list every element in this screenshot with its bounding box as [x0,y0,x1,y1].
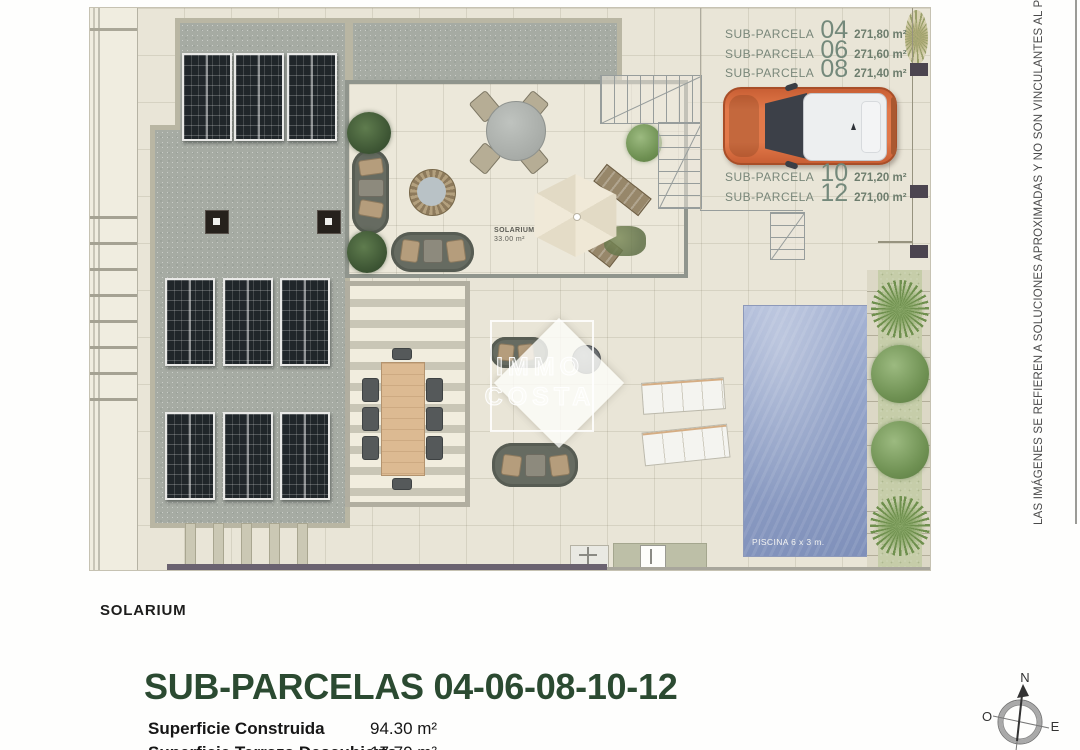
plan-caption: SOLARIUM [100,602,186,619]
skylight-right [317,210,341,234]
curved-sofa-left [352,149,389,234]
solar-panel [280,412,330,500]
perimeter-wall-dark [167,564,607,570]
car-hood-shade [729,95,759,157]
solar-panel [182,53,232,141]
perimeter-wall-light [607,567,930,570]
car-tailgate [891,97,896,155]
parcel-labels-bottom: SUB-PARCELA10271,20 m²SUB-PARCELA12271,0… [725,164,907,203]
border-rule [1075,0,1077,524]
solar-panel [165,412,215,500]
solar-panel [165,278,215,366]
curved-sofa-bottom [391,232,474,272]
walkway-rungs [90,216,137,421]
parcel-area: 271,20 m² [854,172,906,184]
swimming-pool: PISCINA 6 x 3 m. [743,305,869,557]
floor-plan: SOLARIUM 33.00 m² [90,8,930,570]
watermark-logo: IMMO COSTA [482,352,598,412]
surface-label: Superficie Terraza Descubierto [148,743,397,750]
shower-fixture [650,549,652,564]
plant [347,231,387,273]
chair [362,436,379,460]
grass-clump [870,496,930,556]
wall-segment [910,63,928,76]
skylight-left [205,210,229,234]
round-dining-table [486,101,546,161]
walkway-rung-top [90,28,137,31]
driveway-boundary-line [700,8,701,210]
solarium-area-label: SOLARIUM 33.00 m² [494,226,535,244]
parcel-prefix: SUB-PARCELA [725,47,814,61]
staircase-lower-flight [658,122,702,209]
compass-e: E [1051,719,1060,734]
parcel-area: 271,00 m² [854,192,906,204]
parcel-prefix: SUB-PARCELA [725,66,814,80]
plant [347,112,391,154]
page-title: SUB-PARCELAS 04-06-08-10-12 [144,666,677,708]
wall-segment [910,245,928,258]
pergola-beam [297,523,308,568]
grass-clump [871,280,929,338]
solar-panel [280,278,330,366]
parcel-prefix: SUB-PARCELA [725,27,814,41]
lounge-sofa-bottom [492,443,578,487]
compass-rose-icon: N O E S [965,665,1075,750]
parcel-label: SUB-PARCELA12271,00 m² [725,184,907,204]
bush [871,421,929,479]
small-staircase [770,212,805,260]
parcel-label: SUB-PARCELA06271,60 m² [725,41,907,61]
parcel-area: 271,60 m² [854,49,906,61]
car-sunroof-seam [861,101,881,153]
dry-planting-strip [905,10,928,65]
parcel-label: SUB-PARCELA04271,80 m² [725,21,907,41]
wooden-dining-table [381,362,425,476]
solar-panel [223,412,273,500]
floor-plan-page: SOLARIUM 33.00 m² [0,0,1080,750]
pool-lounger [641,377,726,415]
chair [426,407,443,431]
chair [392,478,412,490]
parcel-label: SUB-PARCELA08271,40 m² [725,60,907,80]
parcel-area: 271,40 m² [854,68,906,80]
car-windshield [765,93,807,159]
lower-boundary-line [700,210,803,211]
solar-panel [234,53,284,141]
surface-label: Superficie Construida [148,719,325,738]
roof-gravel-top [348,18,622,85]
pergola-beam [185,523,196,568]
legal-disclaimer: LAS IMÁGENES SE REFIEREN A SOLUCIONES AP… [1030,0,1049,525]
kerb-line [878,241,912,243]
compass-o: O [982,709,992,724]
shower-box [640,545,666,569]
parked-car [723,87,897,165]
pool-lounger [641,424,730,467]
pool-size-label: PISCINA 6 x 3 m. [752,537,825,547]
pergola-beam [241,523,252,568]
compass-n: N [1020,670,1029,685]
shower-crossbar [579,554,597,556]
pergola-beam [213,523,224,568]
chair [426,378,443,402]
surface-value: 94.30 m² [370,719,437,739]
surface-row: Superficie Construida 94.30 m² [148,719,568,739]
parcel-area: 271,80 m² [854,29,906,41]
solar-panel [287,53,337,141]
parcel-label: SUB-PARCELA10271,20 m² [725,164,907,184]
staircase-upper-flight [600,75,702,124]
wicker-table-top [417,177,446,206]
surface-value: 17.70 m² [370,743,437,750]
parcel-number: 12 [820,184,848,202]
chair [392,348,412,360]
wall-segment [910,185,928,198]
parcel-prefix: SUB-PARCELA [725,190,814,204]
roof-step-border [150,125,180,130]
bush [871,345,929,403]
chair [362,407,379,431]
parasol-pole [573,213,581,221]
pergola-beam [269,523,280,568]
parcel-labels-top: SUB-PARCELA04271,80 m²SUB-PARCELA06271,6… [725,21,907,80]
solar-panel [223,278,273,366]
pergola-dining-area [345,281,470,507]
surface-row: Superficie Terraza Descubierto 17.70 m² [148,743,568,750]
chair [426,436,443,460]
right-wall-line [912,8,913,258]
parcel-prefix: SUB-PARCELA [725,170,814,184]
parcel-number: 08 [820,60,848,78]
chair [362,378,379,402]
bush [626,124,662,162]
